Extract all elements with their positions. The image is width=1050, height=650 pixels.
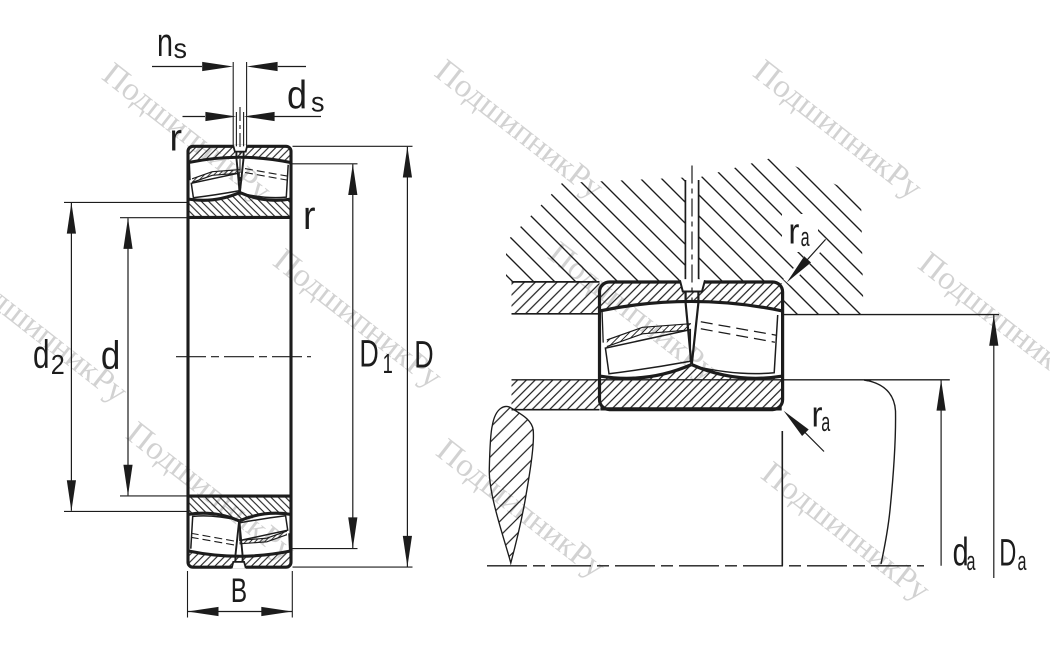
svg-text:1: 1 bbox=[383, 348, 393, 379]
svg-text:a: a bbox=[1018, 546, 1028, 576]
svg-text:B: B bbox=[231, 572, 247, 610]
svg-text:a: a bbox=[801, 222, 811, 252]
svg-text:d: d bbox=[287, 74, 307, 118]
svg-text:s: s bbox=[311, 87, 325, 118]
svg-text:a: a bbox=[821, 407, 831, 437]
svg-text:d: d bbox=[101, 334, 120, 378]
svg-text:D: D bbox=[414, 334, 433, 376]
svg-text:d: d bbox=[33, 333, 50, 377]
svg-text:D: D bbox=[359, 333, 378, 375]
svg-text:n: n bbox=[157, 21, 173, 65]
svg-text:D: D bbox=[999, 533, 1016, 575]
svg-text:r: r bbox=[170, 118, 183, 160]
svg-text:r: r bbox=[303, 194, 316, 238]
svg-text:r: r bbox=[788, 210, 799, 251]
svg-text:s: s bbox=[174, 33, 188, 64]
svg-text:a: a bbox=[967, 546, 977, 576]
svg-text:2: 2 bbox=[51, 349, 65, 380]
